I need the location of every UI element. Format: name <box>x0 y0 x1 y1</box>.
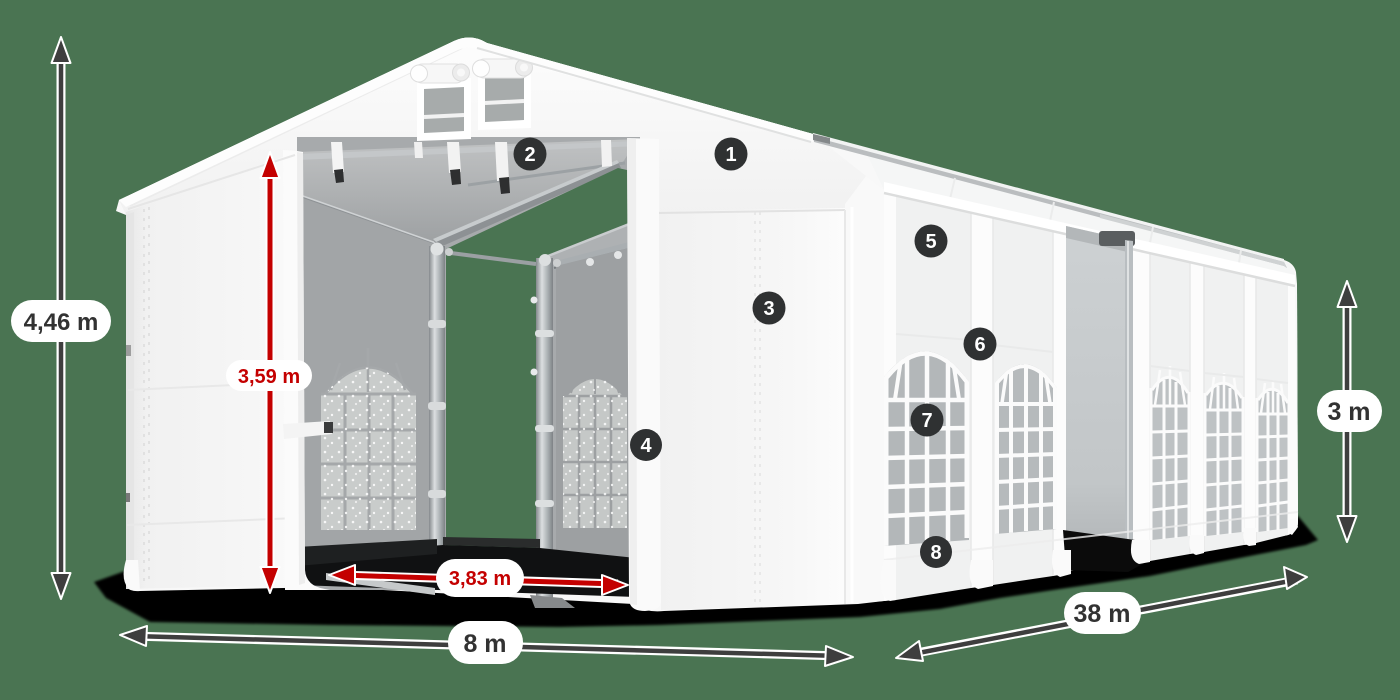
svg-text:38 m: 38 m <box>1074 600 1131 628</box>
svg-text:3,59 m: 3,59 m <box>238 366 300 388</box>
svg-text:3: 3 <box>763 298 774 320</box>
svg-text:3 m: 3 m <box>1327 398 1370 426</box>
svg-text:8: 8 <box>930 542 941 564</box>
svg-text:4,46 m: 4,46 m <box>24 309 99 336</box>
svg-text:2: 2 <box>524 144 535 166</box>
svg-text:3,83 m: 3,83 m <box>449 568 511 590</box>
svg-text:8 m: 8 m <box>463 630 506 658</box>
svg-text:5: 5 <box>925 231 936 253</box>
svg-text:4: 4 <box>640 435 652 457</box>
svg-text:7: 7 <box>921 410 932 432</box>
svg-text:6: 6 <box>974 334 985 356</box>
svg-text:1: 1 <box>725 144 736 166</box>
